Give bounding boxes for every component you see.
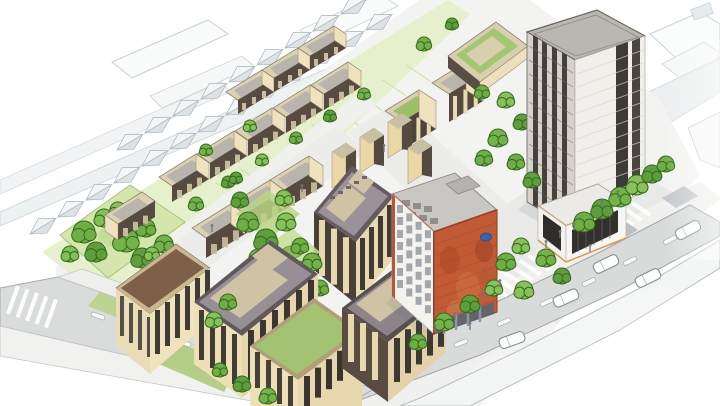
logo-badge [481,233,492,241]
terrace-windows [215,167,220,175]
tree-canopy [259,393,269,403]
tree [219,294,237,310]
window-grid [397,268,403,276]
tree [474,85,490,99]
window-strips [394,338,400,382]
tree-canopy [284,196,293,205]
tree-canopy [219,299,229,309]
window-strips [155,310,160,354]
tree-canopy [85,249,97,261]
tree [229,172,242,184]
tree-canopy [620,194,631,205]
window-strips [175,294,180,338]
tree [255,154,268,166]
pedestrian-head [559,230,562,233]
tree-canopy [312,259,322,269]
pedestrian-head [211,224,214,227]
tree-canopy [602,206,613,217]
tree-canopy [514,287,525,298]
tree [259,388,277,404]
tree-canopy [536,255,547,266]
red-edge-strip [392,194,395,299]
tree-canopy [84,229,96,241]
window-strips [304,376,310,406]
roof-plant-units [338,191,343,194]
window-strips [277,368,282,404]
tower-glass-strip [632,38,640,196]
tree-canopy [516,160,525,169]
window-grid [416,247,422,255]
tree-canopy [330,114,337,121]
tree [289,132,302,144]
window-strips [138,310,142,350]
roof-plant-units [362,176,367,179]
window-grid [425,280,431,288]
window-strips [129,303,133,343]
sidewalk-tree [434,313,454,331]
tree-canopy [591,206,603,218]
tree-canopy [237,219,249,231]
tree [291,238,309,254]
terrace-windows [253,144,258,152]
roof-plant-units [424,206,432,212]
window-strips [120,296,124,336]
terrace-windows [133,222,138,230]
tree [488,129,508,147]
tree-canopy [523,177,533,187]
pedestrian-head [589,244,592,247]
pedestrian-head [469,322,472,325]
tree-canopy [498,135,508,145]
window-strips [199,310,204,360]
tree-canopy [146,225,156,235]
terrace-windows [278,81,282,88]
pedestrian-head [383,144,386,147]
terrace-windows [225,161,230,169]
terrace-windows [263,138,268,146]
tree-canopy [637,182,648,193]
window-grid [406,288,412,296]
tree-canopy [460,301,471,312]
terrace-windows [314,59,318,66]
tree-canopy [452,22,459,29]
window-grid [425,255,431,263]
tree-canopy [248,219,259,230]
tree-canopy [320,286,329,295]
tree [243,120,256,132]
tree-canopy [444,319,454,329]
tree-canopy [220,368,228,376]
terrace-windows [273,132,278,140]
tree-canopy [72,228,86,242]
tree-canopy [506,259,516,269]
terrace-windows [329,98,334,106]
tree [275,190,293,206]
tree-canopy [642,171,653,182]
window-grid [425,242,431,250]
tree-canopy [205,317,215,327]
window-grid [406,238,412,246]
roof-plant-units [330,196,335,199]
terrace-windows [233,230,239,240]
facade-pilasters [416,118,420,142]
tree-canopy [262,158,269,165]
terrace-windows [222,237,228,247]
terrace-windows [197,178,202,186]
tree-canopy [496,259,507,270]
tree-canopy [609,194,621,206]
tree [61,246,79,262]
terrace-windows [177,190,182,198]
tree [188,197,204,211]
tree-canopy [475,155,485,165]
tree-canopy [233,381,243,391]
terrace-windows [235,155,240,163]
tree [205,312,223,328]
tree-canopy [286,219,296,229]
tree [199,144,212,156]
pedestrian-head [434,324,437,327]
facade-cores [343,237,349,293]
window-grid [416,272,422,280]
tree-canopy [562,274,571,283]
window-grid [425,267,431,275]
facade-pilasters [453,96,457,120]
tree-canopy [291,243,301,253]
pedestrian-head [454,312,457,315]
tree-canopy [242,382,251,391]
terrace-windows [291,121,296,129]
window-grid [416,234,422,242]
sidewalk-tree [409,334,427,350]
tree-canopy [409,339,419,349]
fade-overlay-bottom-right [560,290,720,406]
tree-canopy [513,119,523,129]
window-strips [255,352,260,388]
tree-canopy [418,340,427,349]
tree [507,154,525,170]
terrace-windows [211,244,217,254]
tree [233,376,251,392]
window-grid [397,230,403,238]
tree-canopy [546,255,556,265]
window-grid [406,263,412,271]
pedestrian-head [573,222,576,225]
tree [416,37,432,51]
tree-canopy [484,156,493,165]
pedestrian-head [499,279,502,282]
tower-glass-strip [616,42,628,205]
window-grid [406,213,412,221]
tree-canopy [296,136,303,143]
tree-canopy [507,159,517,169]
tree-canopy [275,195,285,205]
tree-canopy [206,148,213,155]
roof-plant-units [354,181,359,184]
window-strips [185,286,190,330]
terrace-windows [298,69,302,76]
window-strips [288,376,293,406]
pedestrian-head [483,290,486,293]
tree-canopy [573,219,585,231]
tree-canopy [470,301,480,311]
tree-canopy [584,219,595,230]
tree-canopy [268,394,277,403]
facade-cores [348,314,354,362]
tree-canopy [126,236,139,249]
tree-canopy [250,124,257,131]
masterplan-illustration [0,0,720,406]
tree [357,88,370,100]
terrace-windows [339,92,344,100]
tree [323,110,336,122]
window-grid [397,255,403,263]
window-grid [406,225,412,233]
aerial-masterplan-rendering [0,0,720,406]
window-strips [360,238,365,290]
rust-mottle [475,238,493,262]
terrace-windows [334,47,338,54]
window-strips [326,359,332,389]
tree [497,92,515,108]
tree [536,249,556,267]
tree-canopy [553,273,563,283]
terrace-windows [242,103,246,110]
terrace-windows [349,86,354,94]
roof-plant-units [413,203,421,209]
window-grid [425,230,431,238]
window-grid [406,250,412,258]
tree-canopy [652,171,662,181]
tree [512,238,530,254]
tree-canopy [240,198,249,207]
tree-canopy [521,244,530,253]
facade-pilasters [463,90,467,114]
window-strips [165,302,170,346]
tree-canopy [482,90,490,98]
window-grid [397,217,403,225]
window-grid [397,242,403,250]
window-strips [232,334,237,384]
tree-canopy [131,255,143,267]
sidewalk-tree [460,295,480,313]
window-grid [397,205,403,213]
terrace-windows [301,115,306,123]
tree-canopy [94,215,105,226]
pedestrian-head [617,190,620,193]
tree-canopy [228,300,237,309]
pedestrian-head [601,199,604,202]
tree [475,150,493,166]
tree-canopy [506,98,515,107]
window-grid [416,297,422,305]
roof-plant-units [430,218,438,224]
window-grid [425,305,431,313]
terrace-windows [123,228,128,236]
tree-canopy [488,135,499,146]
tree-canopy [231,197,241,207]
window-grid [406,276,412,284]
tree [212,363,228,377]
window-strips [315,368,321,398]
tree-canopy [300,244,309,253]
terrace-windows [324,53,328,60]
tree [445,18,458,30]
tree [523,172,541,188]
window-grid [416,259,422,267]
fade-overlay-right [664,40,720,260]
pedestrian-head [301,184,304,187]
tree-canopy [70,252,79,261]
tree [231,192,249,208]
tree-canopy [485,285,495,295]
terrace-windows [187,184,192,192]
terrace-windows [252,97,256,104]
tower-mullion [542,41,547,214]
tree [276,213,296,231]
tree-canopy [96,249,107,260]
facade-cores [360,323,366,371]
tree-canopy [61,251,71,261]
tree-canopy [364,92,371,99]
tree-canopy [276,219,287,230]
terrace-windows [300,189,306,199]
tree-canopy [494,286,503,295]
tree-canopy [236,176,243,183]
terrace-windows [143,216,148,224]
window-strips [369,227,374,279]
facade-cores [372,332,378,380]
tree-canopy [424,42,432,50]
terrace-windows [262,91,266,98]
tree-canopy [497,97,507,107]
tree-canopy [524,287,534,297]
terrace-windows [311,182,317,192]
tree [496,253,516,271]
window-grid [397,280,403,288]
pedestrian-head [545,240,548,243]
window-strips [387,205,392,257]
window-grid [425,293,431,301]
tree-canopy [532,178,541,187]
window-grid [416,222,422,230]
terrace-windows [311,109,316,117]
window-strips [378,216,383,268]
terrace-windows [288,75,292,82]
facade-cores [331,229,337,285]
tree-canopy [512,243,522,253]
tree-canopy [196,202,204,210]
window-grid [416,285,422,293]
window-strips [405,329,411,373]
tree [514,281,534,299]
tree-canopy [214,318,223,327]
tree [553,268,571,284]
tree-canopy [626,182,638,194]
roof-plant-units [346,186,351,189]
